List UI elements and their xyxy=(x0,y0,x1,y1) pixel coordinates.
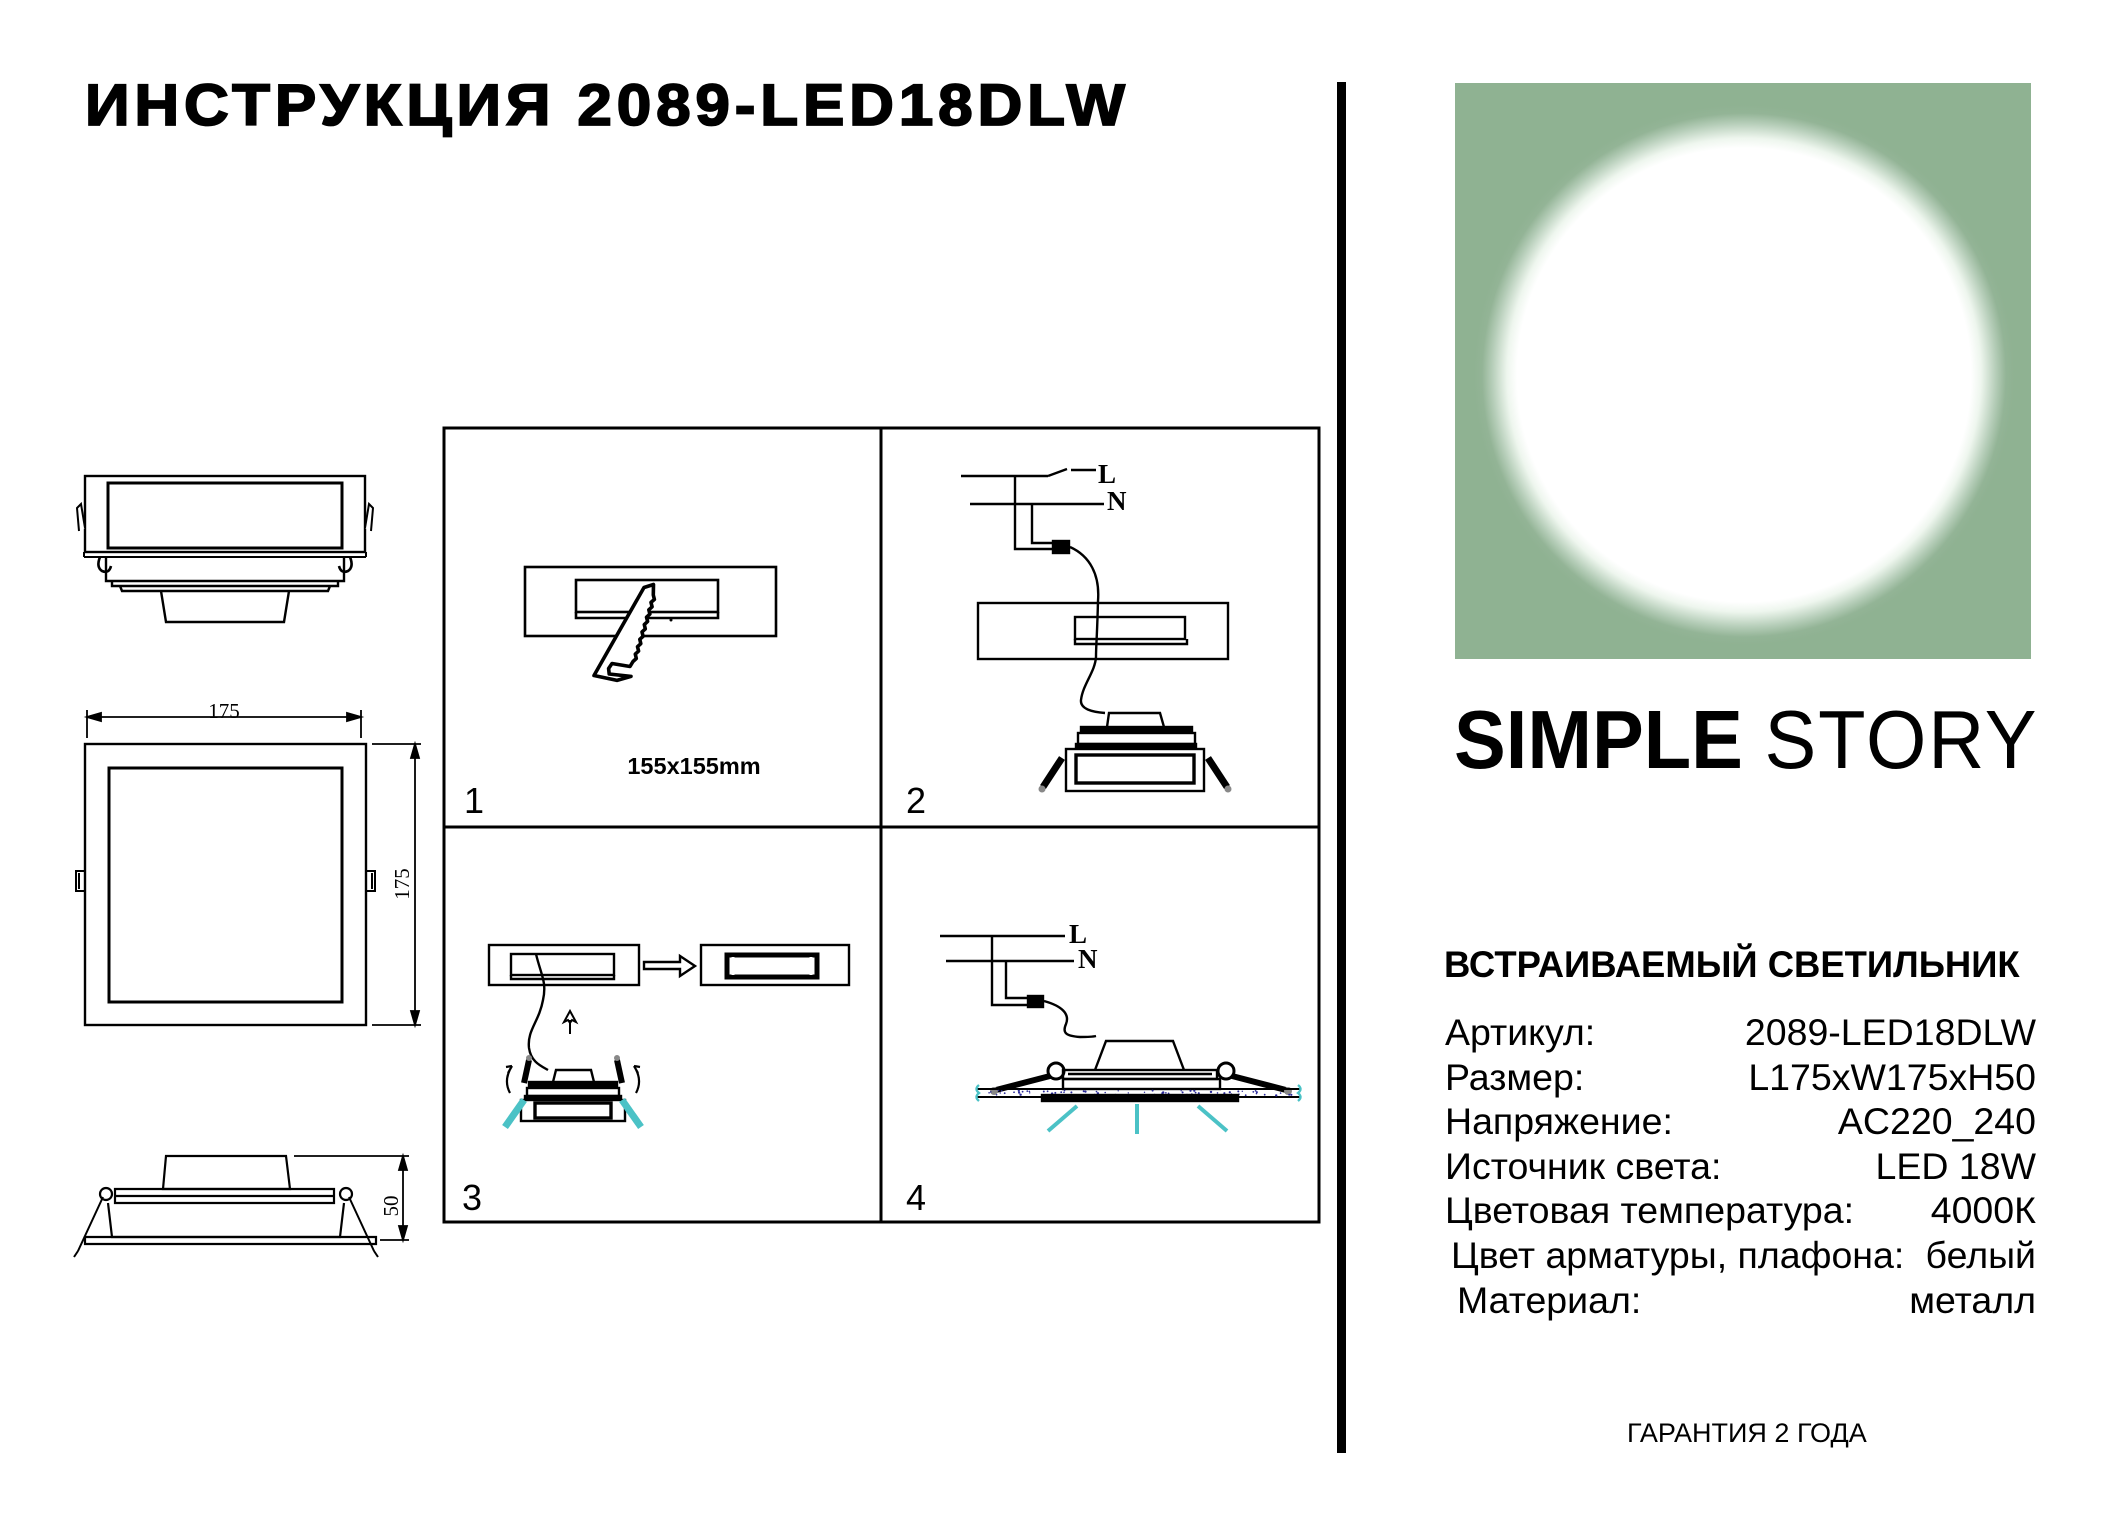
svg-text:175: 175 xyxy=(390,868,414,900)
svg-text:155x155mm: 155x155mm xyxy=(627,753,760,779)
svg-text:L: L xyxy=(1098,459,1116,489)
svg-text:3: 3 xyxy=(462,1177,482,1218)
svg-text:N: N xyxy=(1107,486,1127,516)
svg-text:2: 2 xyxy=(906,780,926,821)
svg-text:1: 1 xyxy=(464,780,484,821)
svg-text:50: 50 xyxy=(379,1196,403,1217)
svg-text:175: 175 xyxy=(208,699,240,723)
svg-text:N: N xyxy=(1078,944,1098,974)
svg-text:4: 4 xyxy=(906,1177,926,1218)
